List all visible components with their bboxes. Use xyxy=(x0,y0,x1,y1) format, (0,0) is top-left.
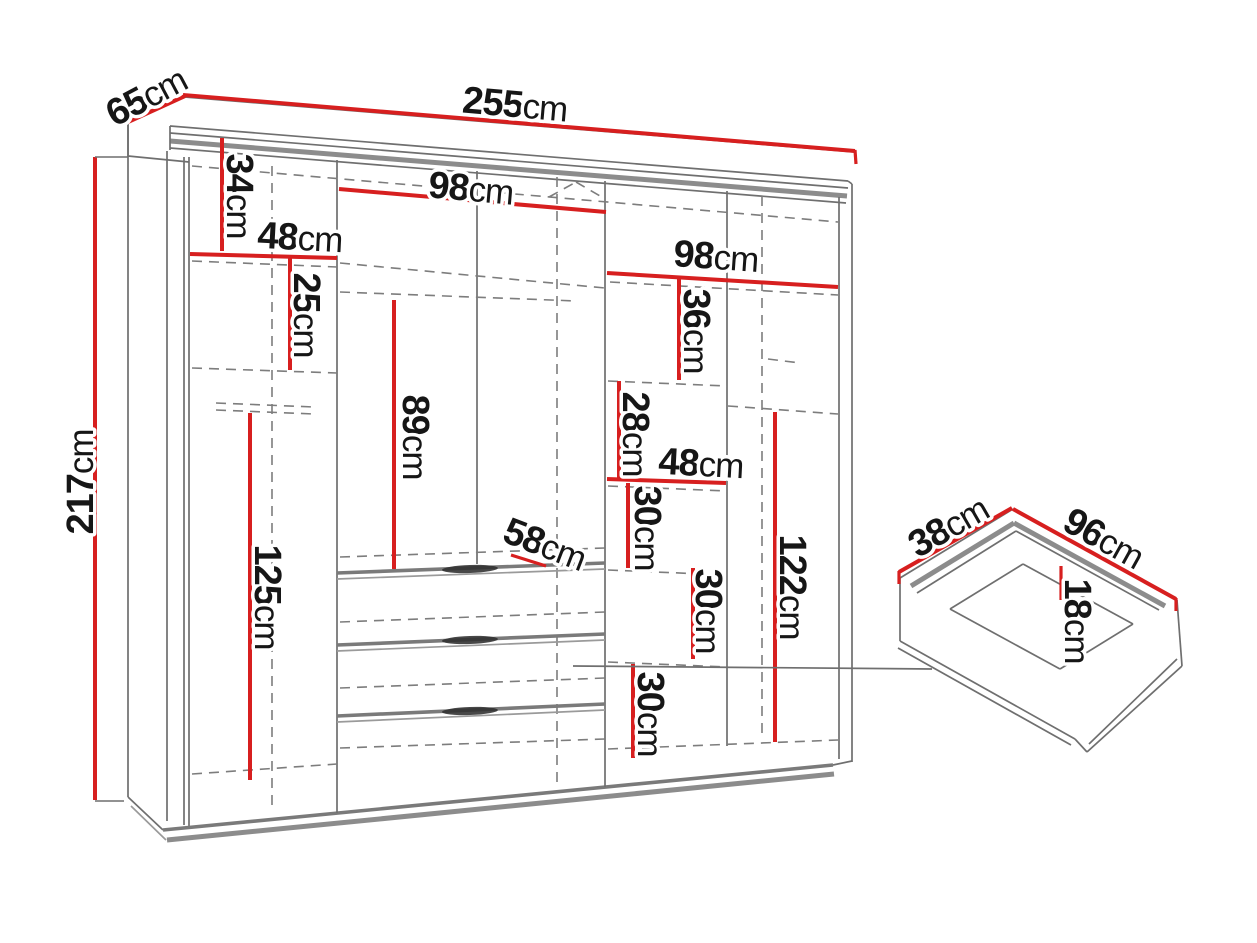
dim-label-left-shelf-space-25cm: 25cm xyxy=(285,273,327,358)
dim-label-drawer-depth-38cm: 38cm xyxy=(901,487,996,566)
dim-label-depth-65cm: 65cm xyxy=(99,58,194,135)
dim-label-right-space-28cm: 28cm xyxy=(614,392,656,477)
dim-label-right-top-shelf-36cm: 36cm xyxy=(675,289,717,374)
dim-label-right-width-98cm: 98cm xyxy=(672,233,760,281)
wardrobe-drawers xyxy=(337,563,605,722)
dim-label-width-255cm: 255cm xyxy=(461,79,569,130)
dim-label-drawer-height-18cm: 18cm xyxy=(1056,579,1098,664)
dim-label-height-217cm: 217cm xyxy=(60,429,102,534)
dim-line-width-255-tick xyxy=(855,150,856,164)
dim-label-interior-depth-58cm: 58cm xyxy=(497,510,591,580)
dim-label-left-width-48cm: 48cm xyxy=(256,215,343,261)
leader-line xyxy=(573,666,932,669)
drawer-handle xyxy=(442,635,498,645)
dim-label-drawer-width-96cm: 96cm xyxy=(1056,500,1151,578)
dim-label-right-hanging-122cm: 122cm xyxy=(771,534,813,639)
dim-label-right-space-30cm-a: 30cm xyxy=(626,486,668,571)
dim-label-mid-hanging-89cm: 89cm xyxy=(394,395,436,480)
dim-label-right-space-30cm-c: 30cm xyxy=(629,672,671,757)
dim-label-right-half-width-48cm: 48cm xyxy=(657,441,744,487)
dim-label-left-top-shelf-34cm: 34cm xyxy=(218,154,260,239)
dim-label-left-door-space-125cm: 125cm xyxy=(246,544,288,649)
dim-label-right-space-30cm-b: 30cm xyxy=(687,569,729,654)
wardrobe-dimension-diagram: 65cm 255cm 217cm 34cm 48cm 25cm 98cm 89c… xyxy=(0,0,1257,943)
dim-label-mid-width-98cm: 98cm xyxy=(427,164,515,213)
